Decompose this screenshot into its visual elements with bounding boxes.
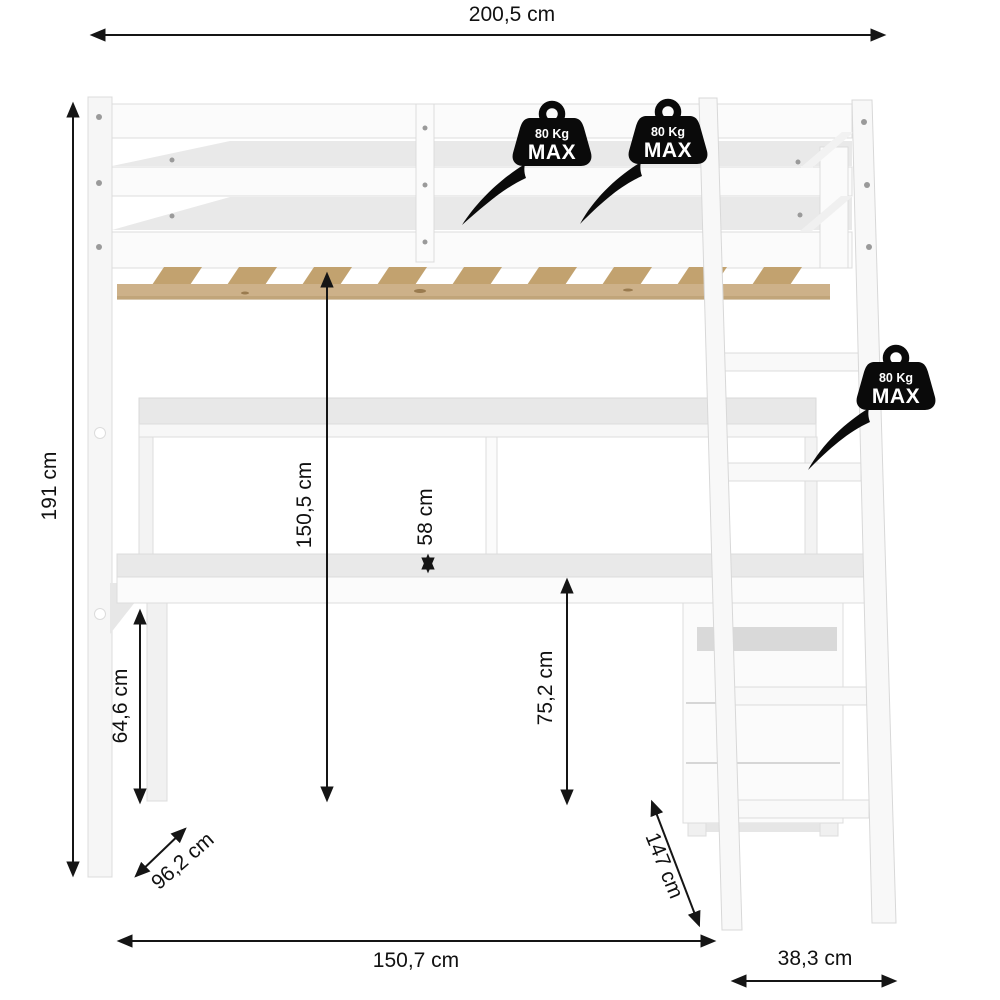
shelf-divider-right xyxy=(805,437,817,555)
post-hole xyxy=(95,609,106,620)
screw xyxy=(423,126,428,131)
screw xyxy=(96,180,102,186)
badge-max-text: MAX xyxy=(528,141,576,164)
dim-label-ladder-depth: 38,3 cm xyxy=(778,947,853,970)
screw xyxy=(861,119,867,125)
screw xyxy=(798,213,803,218)
screw xyxy=(423,183,428,188)
desk-leg-left xyxy=(147,603,167,801)
bed-side-rail xyxy=(110,232,852,268)
ladder-rung xyxy=(714,463,861,481)
dim-label-bed-depth: 96,2 cm xyxy=(147,828,218,894)
dimension-leg-height: 64,6 cm xyxy=(109,611,140,802)
dim-label-desk-width: 150,7 cm xyxy=(373,949,459,972)
screw xyxy=(170,158,175,163)
screw xyxy=(96,114,102,120)
ladder-rung xyxy=(720,800,869,818)
dim-label-desk-height: 75,2 cm xyxy=(534,651,557,726)
ladder-rung xyxy=(718,687,869,705)
post-hole xyxy=(95,428,106,439)
dimension-bed-depth: 96,2 cm xyxy=(136,828,218,894)
shelf-support-left xyxy=(139,437,153,563)
bed-post-left xyxy=(88,97,112,877)
guardrail-top xyxy=(110,104,852,138)
cabinet-foot xyxy=(820,823,838,836)
inner-rail-shade-top xyxy=(112,141,852,166)
guardrail-middle xyxy=(110,167,852,196)
dimension-under-bed-clearance: 150,5 cm xyxy=(293,274,327,800)
dimension-ladder-depth: 38,3 cm xyxy=(733,947,895,981)
dim-label-clearance: 150,5 cm xyxy=(293,462,316,548)
dimension-diagram: 80 Kg MAX 80 Kg MAX 80 Kg MAX 200,5 cm 1… xyxy=(0,0,1000,1000)
dim-label-ladder-length: 147 cm xyxy=(640,829,687,901)
cabinet-foot xyxy=(688,823,706,836)
dim-label-shelf-gap: 58 cm xyxy=(414,488,437,545)
screw xyxy=(423,240,428,245)
dimension-desk-height: 75,2 cm xyxy=(534,580,567,803)
shelf-divider-center xyxy=(486,437,497,557)
screw xyxy=(796,160,801,165)
screw xyxy=(864,182,870,188)
badge-weight-text: 80 Kg xyxy=(879,371,913,385)
dimension-total-width: 200,5 cm xyxy=(92,3,884,35)
dimension-total-height: 191 cm xyxy=(38,104,73,875)
screw xyxy=(866,244,872,250)
badge-max-text: MAX xyxy=(644,139,692,162)
dimension-desk-width: 150,7 cm xyxy=(119,941,714,972)
dim-label-total-height: 191 cm xyxy=(38,452,61,521)
badge-max-text: MAX xyxy=(872,385,920,408)
desk-apron xyxy=(117,577,866,603)
badge-weight-text: 80 Kg xyxy=(535,127,569,141)
dim-label-leg-height: 64,6 cm xyxy=(109,669,132,744)
desk-top xyxy=(117,554,866,577)
ladder-rung xyxy=(712,353,861,371)
screw xyxy=(96,244,102,250)
screw xyxy=(170,214,175,219)
dim-label-total-width: 200,5 cm xyxy=(469,3,555,26)
badge-weight-text: 80 Kg xyxy=(651,125,685,139)
